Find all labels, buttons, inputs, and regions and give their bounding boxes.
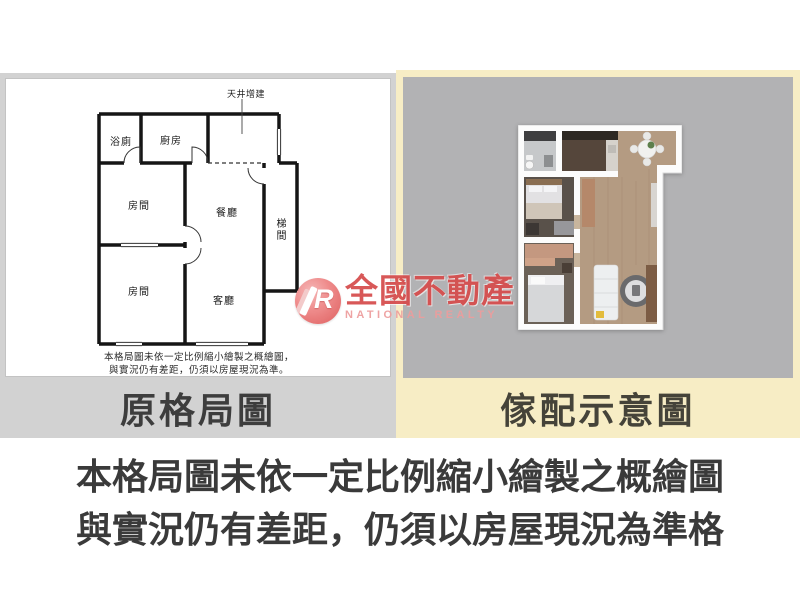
toilet-icon (526, 161, 534, 169)
footer-disclaimer-line1: 本格局圖未依一定比例縮小繪製之概繪圖 (0, 450, 800, 503)
right-panel-title: 傢配示意圖 (396, 378, 800, 438)
room-label-living: 客廳 (195, 292, 253, 307)
room-label-bedroom2: 房間 (109, 283, 169, 298)
kitchen-island (606, 140, 618, 171)
floorplan-walls (6, 79, 392, 378)
bathroom-vanity (524, 131, 556, 141)
floorplan-drawing: 天井增建 浴廁 廚房 房間 房間 餐廳 客廳 梯間 本格局圖未依一定比例縮小繪製… (5, 78, 391, 377)
floorplan-disclaimer-line2: 與實況仍有差距，仍須以房屋現況為準。 (6, 362, 392, 376)
room-label-dining: 餐廳 (198, 204, 256, 219)
room-label-kitchen: 廚房 (146, 132, 196, 147)
room-label-bathroom: 浴廁 (102, 133, 140, 148)
room-label-bedroom1: 房間 (109, 197, 169, 212)
brand-name-english: NATIONAL REALTY (345, 309, 535, 321)
national-realty-watermark: R 全國不動產 NATIONAL REALTY (291, 250, 541, 330)
bedroom1-wardrobe (554, 221, 574, 235)
sideboard (582, 179, 595, 227)
page-root: { "left_panel": { "label": "原格局圖", "floo… (0, 0, 800, 600)
bedroom1-desk (526, 223, 539, 235)
annotation-skylight-addition: 天井增建 (211, 87, 281, 100)
kitchen-counter (562, 131, 618, 140)
storage-cabinet (646, 265, 657, 322)
brand-name-chinese: 全國不動產 (345, 274, 535, 308)
floorplan-disclaimer-line1: 本格局圖未依一定比例縮小繪製之概繪圖， (6, 349, 392, 363)
furnished-3d-floorplan (518, 125, 682, 330)
footer-disclaimer-line2: 與實況仍有差距，仍須以房屋現況為準格 (0, 503, 800, 556)
furnished-plan-background (403, 77, 793, 378)
footer-disclaimer: 本格局圖未依一定比例縮小繪製之概繪圖 與實況仍有差距，仍須以房屋現況為準格 (0, 450, 800, 556)
room-label-stairs: 梯間 (272, 210, 287, 250)
plant-icon (648, 142, 655, 149)
national-realty-logo-icon: R (295, 278, 341, 324)
left-panel-title: 原格局圖 (0, 378, 396, 438)
